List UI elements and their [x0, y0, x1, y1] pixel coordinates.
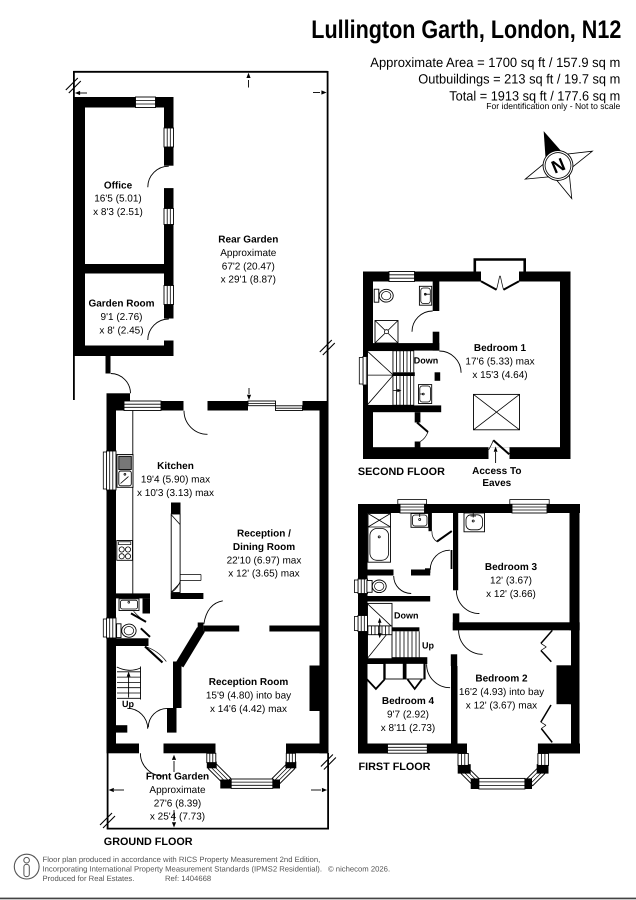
svg-text:Lullington Garth, London, N12: Lullington Garth, London, N12 — [311, 16, 621, 44]
svg-text:22'10 (6.97) max: 22'10 (6.97) max — [227, 555, 302, 566]
svg-text:x 8' (2.45): x 8' (2.45) — [99, 325, 143, 336]
svg-text:GROUND FLOOR: GROUND FLOOR — [104, 836, 193, 848]
svg-text:Garden Room: Garden Room — [88, 299, 154, 310]
svg-text:67'2 (20.47): 67'2 (20.47) — [222, 261, 275, 272]
svg-text:Reception /: Reception / — [237, 529, 291, 540]
svg-text:Ref: 1404668: Ref: 1404668 — [165, 874, 211, 883]
svg-text:x 14'6 (4.42) max: x 14'6 (4.42) max — [210, 704, 287, 715]
svg-text:Front Garden: Front Garden — [146, 772, 209, 783]
svg-text:Dining Room: Dining Room — [233, 542, 295, 553]
svg-text:Down: Down — [414, 356, 439, 366]
svg-text:x 12' (3.65) max: x 12' (3.65) max — [228, 569, 299, 580]
svg-text:Produced for Real Estates.: Produced for Real Estates. — [43, 874, 135, 883]
svg-text:Kitchen: Kitchen — [157, 461, 194, 472]
svg-text:Bedroom 2: Bedroom 2 — [475, 674, 528, 685]
svg-text:x 12' (3.67) max: x 12' (3.67) max — [466, 700, 537, 711]
svg-text:x 29'1 (8.87): x 29'1 (8.87) — [221, 275, 276, 286]
svg-text:Approximate: Approximate — [149, 785, 206, 796]
svg-text:x 15'3 (4.64): x 15'3 (4.64) — [472, 370, 527, 381]
svg-text:Approximate: Approximate — [220, 248, 277, 259]
svg-text:Office: Office — [104, 180, 133, 191]
svg-text:Up: Up — [422, 641, 434, 651]
svg-text:27'6 (8.39): 27'6 (8.39) — [154, 798, 202, 809]
svg-text:Floor plan produced in accorda: Floor plan produced in accordance with R… — [43, 855, 321, 864]
svg-text:x 12' (3.66): x 12' (3.66) — [486, 589, 536, 600]
svg-text:SECOND FLOOR: SECOND FLOOR — [358, 466, 445, 478]
svg-text:Outbuildings = 213 sq ft / 19.: Outbuildings = 213 sq ft / 19.7 sq m — [418, 72, 620, 87]
svg-text:x 8'11 (2.73): x 8'11 (2.73) — [381, 723, 436, 734]
svg-text:x 10'3 (3.13) max: x 10'3 (3.13) max — [137, 488, 214, 499]
svg-text:16'5 (5.01): 16'5 (5.01) — [94, 194, 142, 205]
svg-text:17'6 (5.33) max: 17'6 (5.33) max — [465, 356, 534, 367]
svg-text:x 25'4 (7.73): x 25'4 (7.73) — [150, 812, 205, 823]
svg-text:Reception Room: Reception Room — [209, 677, 289, 688]
svg-text:For identification only - Not: For identification only - Not to scale — [486, 101, 620, 111]
svg-text:Rear Garden: Rear Garden — [218, 235, 278, 246]
svg-text:Approximate Area = 1700 sq ft: Approximate Area = 1700 sq ft / 157.9 sq… — [370, 55, 620, 70]
svg-text:19'4 (5.90) max: 19'4 (5.90) max — [141, 474, 210, 485]
svg-text:9'1 (2.76): 9'1 (2.76) — [101, 312, 143, 323]
svg-text:Down: Down — [394, 611, 419, 621]
svg-text:Bedroom 4: Bedroom 4 — [382, 696, 435, 707]
svg-text:9'7 (2.92): 9'7 (2.92) — [387, 709, 429, 720]
svg-text:12' (3.67): 12' (3.67) — [490, 575, 532, 586]
svg-text:Bedroom 3: Bedroom 3 — [485, 562, 538, 573]
svg-text:Eaves: Eaves — [482, 478, 511, 489]
svg-text:x 8'3 (2.51): x 8'3 (2.51) — [93, 207, 143, 218]
svg-text:Bedroom 1: Bedroom 1 — [474, 343, 527, 354]
svg-text:15'9 (4.80) into bay: 15'9 (4.80) into bay — [206, 690, 291, 701]
svg-text:Access To: Access To — [472, 466, 521, 477]
svg-text:FIRST FLOOR: FIRST FLOOR — [359, 761, 431, 773]
svg-text:© nichecom 2026.: © nichecom 2026. — [328, 865, 390, 874]
svg-text:16'2 (4.93) into bay: 16'2 (4.93) into bay — [459, 687, 544, 698]
svg-text:Incorporating International Pr: Incorporating International Property Mea… — [43, 865, 322, 874]
svg-text:Up: Up — [122, 699, 134, 709]
